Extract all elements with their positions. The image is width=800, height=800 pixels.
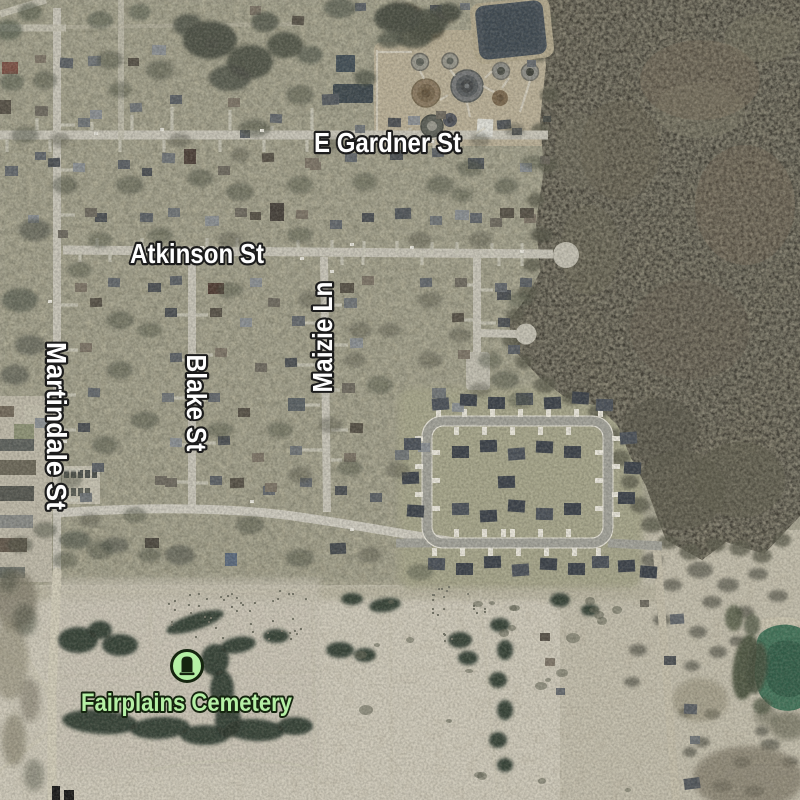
svg-text:Atkinson St: Atkinson St — [130, 238, 264, 269]
svg-text:Blake St: Blake St — [181, 355, 212, 452]
svg-text:E Gardner St: E Gardner St — [314, 127, 461, 158]
svg-text:Fairplains Cemetery: Fairplains Cemetery — [81, 689, 292, 717]
svg-text:Maizie Ln: Maizie Ln — [307, 282, 338, 393]
svg-text:Martindale St: Martindale St — [41, 342, 72, 510]
